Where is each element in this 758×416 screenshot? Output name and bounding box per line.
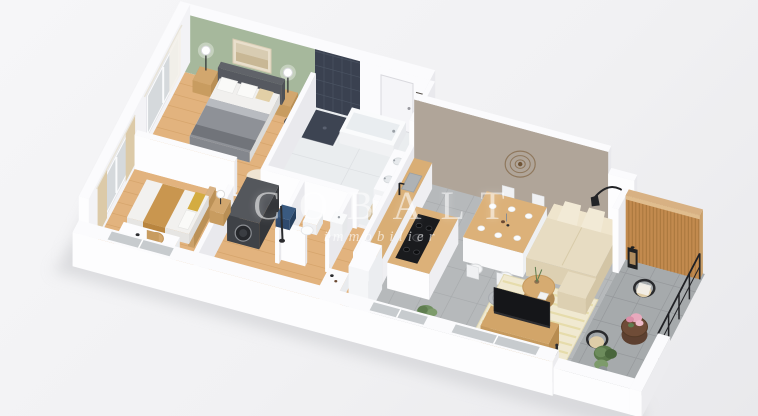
- floorplan-3d-scene: [0, 0, 758, 416]
- floorplan-render: COBALT immobilier: [0, 0, 758, 416]
